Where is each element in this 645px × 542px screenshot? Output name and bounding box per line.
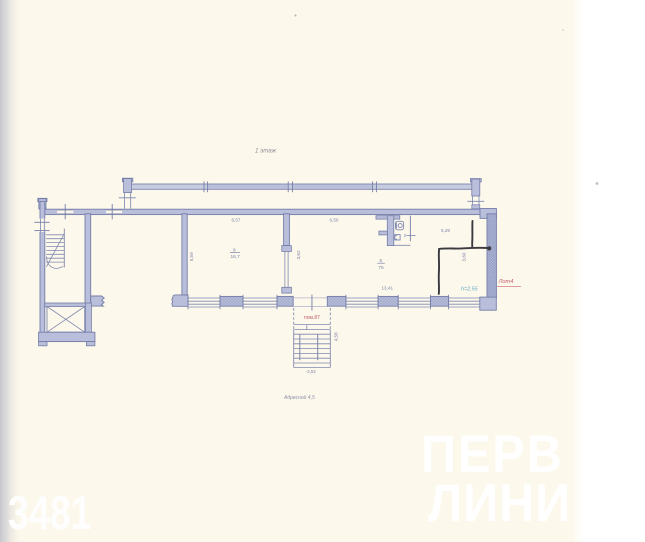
svg-text:2: 2 xyxy=(404,233,407,238)
svg-text:13,41: 13,41 xyxy=(382,285,394,290)
svg-text:пом.87: пом.87 xyxy=(304,315,320,321)
svg-text:6,57: 6,57 xyxy=(232,218,241,223)
svg-text:75: 75 xyxy=(378,265,384,271)
svg-text:1 этаж: 1 этаж xyxy=(255,147,277,154)
svg-text:3,62: 3,62 xyxy=(296,250,301,259)
svg-text:-2,52: -2,52 xyxy=(306,369,317,374)
svg-text:Адресной 4,5: Адресной 4,5 xyxy=(283,394,315,401)
svg-text:6,50: 6,50 xyxy=(330,218,339,223)
svg-text:h=2,55: h=2,55 xyxy=(461,287,479,293)
svg-text:3,60: 3,60 xyxy=(462,252,467,261)
svg-text:Лот4: Лот4 xyxy=(498,279,514,285)
svg-text:16,7: 16,7 xyxy=(231,254,241,260)
svg-text:4,58: 4,58 xyxy=(333,332,338,341)
svg-text:5,29: 5,29 xyxy=(441,228,450,233)
svg-text:5,59: 5,59 xyxy=(189,252,194,261)
